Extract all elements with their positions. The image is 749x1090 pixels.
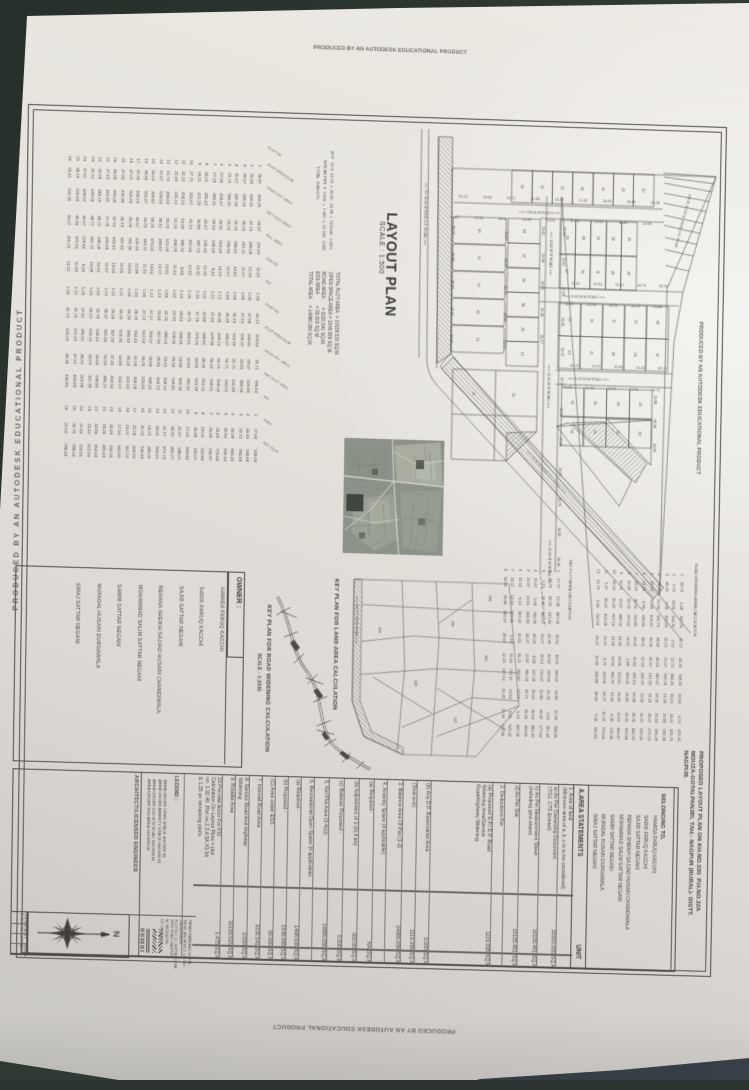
svg-text:10.45: 10.45 xyxy=(560,317,564,326)
svg-text:30.99: 30.99 xyxy=(557,527,561,536)
svg-text:43.95: 43.95 xyxy=(652,443,656,452)
svg-text:14.58: 14.58 xyxy=(642,222,651,226)
svg-text:20: 20 xyxy=(596,236,600,240)
svg-text:39.20: 39.20 xyxy=(609,304,618,308)
svg-text:30.52: 30.52 xyxy=(607,387,616,391)
svg-text:35: 35 xyxy=(627,237,631,241)
svg-text:39: 39 xyxy=(581,236,585,240)
svg-text:46: 46 xyxy=(655,320,659,324)
svg-text:10.39: 10.39 xyxy=(555,198,564,202)
svg-text:<<< 9.00 M.W ROAD >>>: <<< 9.00 M.W ROAD >>> xyxy=(567,377,608,382)
svg-text:26: 26 xyxy=(638,402,642,406)
svg-text:34: 34 xyxy=(522,229,526,233)
svg-text:11: 11 xyxy=(611,319,615,323)
svg-text:37: 37 xyxy=(641,188,645,192)
svg-text:29.27: 29.27 xyxy=(592,364,601,368)
svg-text:13.58: 13.58 xyxy=(483,195,492,199)
svg-text:35.99: 35.99 xyxy=(503,312,507,321)
svg-text:32.22: 32.22 xyxy=(459,195,468,199)
svg-text:14.62: 14.62 xyxy=(562,257,566,266)
svg-text:52: 52 xyxy=(540,185,544,189)
svg-text:34: 34 xyxy=(580,186,584,190)
svg-text:30.25: 30.25 xyxy=(503,285,507,294)
svg-text:58: 58 xyxy=(570,429,574,433)
svg-text:331: 331 xyxy=(450,621,454,627)
svg-text:34: 34 xyxy=(615,402,619,406)
svg-text:30.35: 30.35 xyxy=(659,284,668,288)
svg-text:37: 37 xyxy=(654,353,658,357)
svg-text:330: 330 xyxy=(488,595,492,601)
svg-text:52: 52 xyxy=(633,320,637,324)
svg-text:41.38: 41.38 xyxy=(540,308,544,317)
svg-text:30.46: 30.46 xyxy=(556,557,560,566)
svg-text:40.76: 40.76 xyxy=(637,284,646,288)
svg-text:PROP. 60.00 M. WIDE D.P. ROAD: PROP. 60.00 M. WIDE D.P. ROAD xyxy=(673,194,691,249)
svg-text:28.43: 28.43 xyxy=(450,280,454,289)
svg-text:32.64: 32.64 xyxy=(593,282,602,286)
svg-text:37.29: 37.29 xyxy=(559,377,563,386)
svg-text:37.01: 37.01 xyxy=(562,227,566,236)
svg-text:40.08: 40.08 xyxy=(653,419,657,428)
svg-text:33.08: 33.08 xyxy=(627,200,636,204)
svg-text:39: 39 xyxy=(638,431,642,435)
svg-text:13.36: 13.36 xyxy=(629,388,638,392)
svg-text:23.68: 23.68 xyxy=(653,305,662,309)
svg-text:27.09: 27.09 xyxy=(561,287,565,296)
svg-text:34.17: 34.17 xyxy=(570,364,579,368)
svg-text:N: N xyxy=(111,931,121,938)
svg-text:30: 30 xyxy=(593,401,597,405)
svg-text:35: 35 xyxy=(580,270,584,274)
svg-text:20.41: 20.41 xyxy=(615,283,624,287)
svg-text:36: 36 xyxy=(520,303,524,307)
svg-text:11: 11 xyxy=(595,270,599,274)
svg-text:58: 58 xyxy=(521,278,525,282)
svg-text:25.04: 25.04 xyxy=(546,219,555,223)
svg-text:11.68: 11.68 xyxy=(618,221,627,225)
svg-text:15: 15 xyxy=(589,318,593,322)
svg-text:14.34: 14.34 xyxy=(636,366,645,370)
svg-text:328: 328 xyxy=(413,680,417,686)
svg-text:44: 44 xyxy=(476,310,480,314)
svg-text:49: 49 xyxy=(626,271,630,275)
svg-text:15: 15 xyxy=(519,352,523,356)
svg-text:<<< 9.00 M.W ROAD >>>: <<< 9.00 M.W ROAD >>> xyxy=(519,210,560,215)
svg-text:<<< TO 16.00 M WIDE D.P. ROAD: <<< TO 16.00 M WIDE D.P. ROAD >>> xyxy=(423,182,428,245)
svg-text:11: 11 xyxy=(601,187,605,191)
svg-text:25.88: 25.88 xyxy=(653,395,657,404)
svg-text:13.37: 13.37 xyxy=(502,339,506,348)
svg-text:12.36: 12.36 xyxy=(522,218,531,222)
svg-text:10: 10 xyxy=(511,393,515,397)
svg-text:<<< 9.00 M.W ROAD >>>: <<< 9.00 M.W ROAD >>> xyxy=(564,294,605,299)
svg-text:10.72: 10.72 xyxy=(651,388,660,392)
svg-text:20.61: 20.61 xyxy=(558,467,562,476)
svg-text:44: 44 xyxy=(611,271,615,275)
svg-text:18.03: 18.03 xyxy=(540,281,544,290)
svg-text:15.69: 15.69 xyxy=(614,365,623,369)
svg-text:21: 21 xyxy=(588,351,592,355)
svg-text:22.53: 22.53 xyxy=(594,220,603,224)
svg-text:41.39: 41.39 xyxy=(558,437,562,446)
svg-text:16.62: 16.62 xyxy=(565,302,574,306)
svg-text:11.15: 11.15 xyxy=(579,198,588,202)
svg-text:31: 31 xyxy=(560,186,564,190)
svg-text:45.27: 45.27 xyxy=(539,335,543,344)
svg-text:57: 57 xyxy=(476,283,480,287)
svg-text:22.78: 22.78 xyxy=(587,303,596,307)
svg-text:26: 26 xyxy=(520,327,524,331)
svg-text:<<< 12.00 M W ROAD >>>: <<< 12.00 M W ROAD >>> xyxy=(546,365,551,409)
svg-text:47: 47 xyxy=(565,269,569,273)
svg-text:27.78: 27.78 xyxy=(570,219,579,223)
svg-text:56: 56 xyxy=(611,237,615,241)
svg-text:20.62: 20.62 xyxy=(541,226,545,235)
svg-text:24.82: 24.82 xyxy=(563,385,572,389)
svg-text:13: 13 xyxy=(475,337,479,341)
svg-text:30.67: 30.67 xyxy=(504,231,508,240)
svg-text:19.65: 19.65 xyxy=(450,307,454,316)
svg-text:28.83: 28.83 xyxy=(603,199,612,203)
svg-text:11.21: 11.21 xyxy=(571,282,580,286)
svg-text:20.09: 20.09 xyxy=(541,253,545,262)
svg-text:25.77: 25.77 xyxy=(451,225,455,234)
svg-text:34.86: 34.86 xyxy=(451,253,455,262)
svg-text:<<< 14.00 M W ROAD >>>: <<< 14.00 M W ROAD >>> xyxy=(548,232,553,276)
svg-text:20.98: 20.98 xyxy=(651,201,660,205)
svg-text:24.71: 24.71 xyxy=(507,196,516,200)
svg-text:332: 332 xyxy=(484,655,488,661)
svg-text:<<< 12.00 M W ROAD >>>: <<< 12.00 M W ROAD >>> xyxy=(547,540,552,583)
svg-text:24.47: 24.47 xyxy=(449,334,453,343)
svg-text:33.72: 33.72 xyxy=(560,347,564,356)
svg-text:38.39: 38.39 xyxy=(503,258,507,267)
svg-text:11: 11 xyxy=(477,256,481,260)
svg-text:11.32: 11.32 xyxy=(585,386,594,390)
svg-text:41: 41 xyxy=(621,188,625,192)
svg-text:40: 40 xyxy=(477,229,481,233)
svg-text:53: 53 xyxy=(519,184,523,188)
svg-text:18: 18 xyxy=(632,352,636,356)
svg-text:30.20: 30.20 xyxy=(559,407,563,416)
svg-text:44.07: 44.07 xyxy=(450,215,459,219)
svg-text:45.12: 45.12 xyxy=(658,366,667,370)
svg-text:19.72: 19.72 xyxy=(631,304,640,308)
svg-text:11.58: 11.58 xyxy=(531,197,540,201)
svg-text:39.59: 39.59 xyxy=(498,217,507,221)
svg-text:27: 27 xyxy=(521,254,525,258)
svg-text:17.26: 17.26 xyxy=(474,216,483,220)
svg-text:34.73: 34.73 xyxy=(557,497,561,506)
svg-text:327: 327 xyxy=(453,717,457,723)
svg-text:13: 13 xyxy=(566,350,570,354)
svg-text:23: 23 xyxy=(570,400,574,404)
svg-text:39: 39 xyxy=(610,352,614,356)
